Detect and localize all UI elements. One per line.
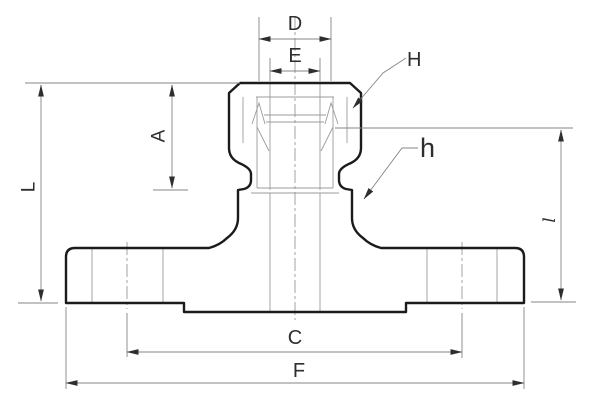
internal-detail-lines (92, 84, 497, 311)
leader-h (364, 148, 418, 199)
dimension-labels: D E H A L h l C F (19, 13, 561, 382)
bolt-hole-lines (92, 249, 497, 302)
leader-label-H: H (407, 49, 421, 71)
technical-drawing-canvas: D E H A L h l C F (0, 0, 600, 406)
dim-label-C: C (288, 327, 302, 349)
flange-fitting-drawing: D E H A L h l C F (0, 0, 600, 406)
dim-label-L: L (19, 182, 40, 193)
dim-label-F: F (293, 360, 305, 382)
dim-label-E: E (288, 45, 301, 67)
extension-lines-l (335, 128, 576, 302)
dim-label-A: A (149, 129, 170, 142)
leader-label-h: h (420, 133, 435, 163)
dimension-L (18, 83, 240, 303)
dim-label-D: D (288, 13, 302, 35)
dimension-l (335, 128, 576, 302)
extension-lines-L (18, 83, 240, 303)
dim-label-l: l (540, 217, 560, 222)
leader-line-h (364, 148, 418, 199)
